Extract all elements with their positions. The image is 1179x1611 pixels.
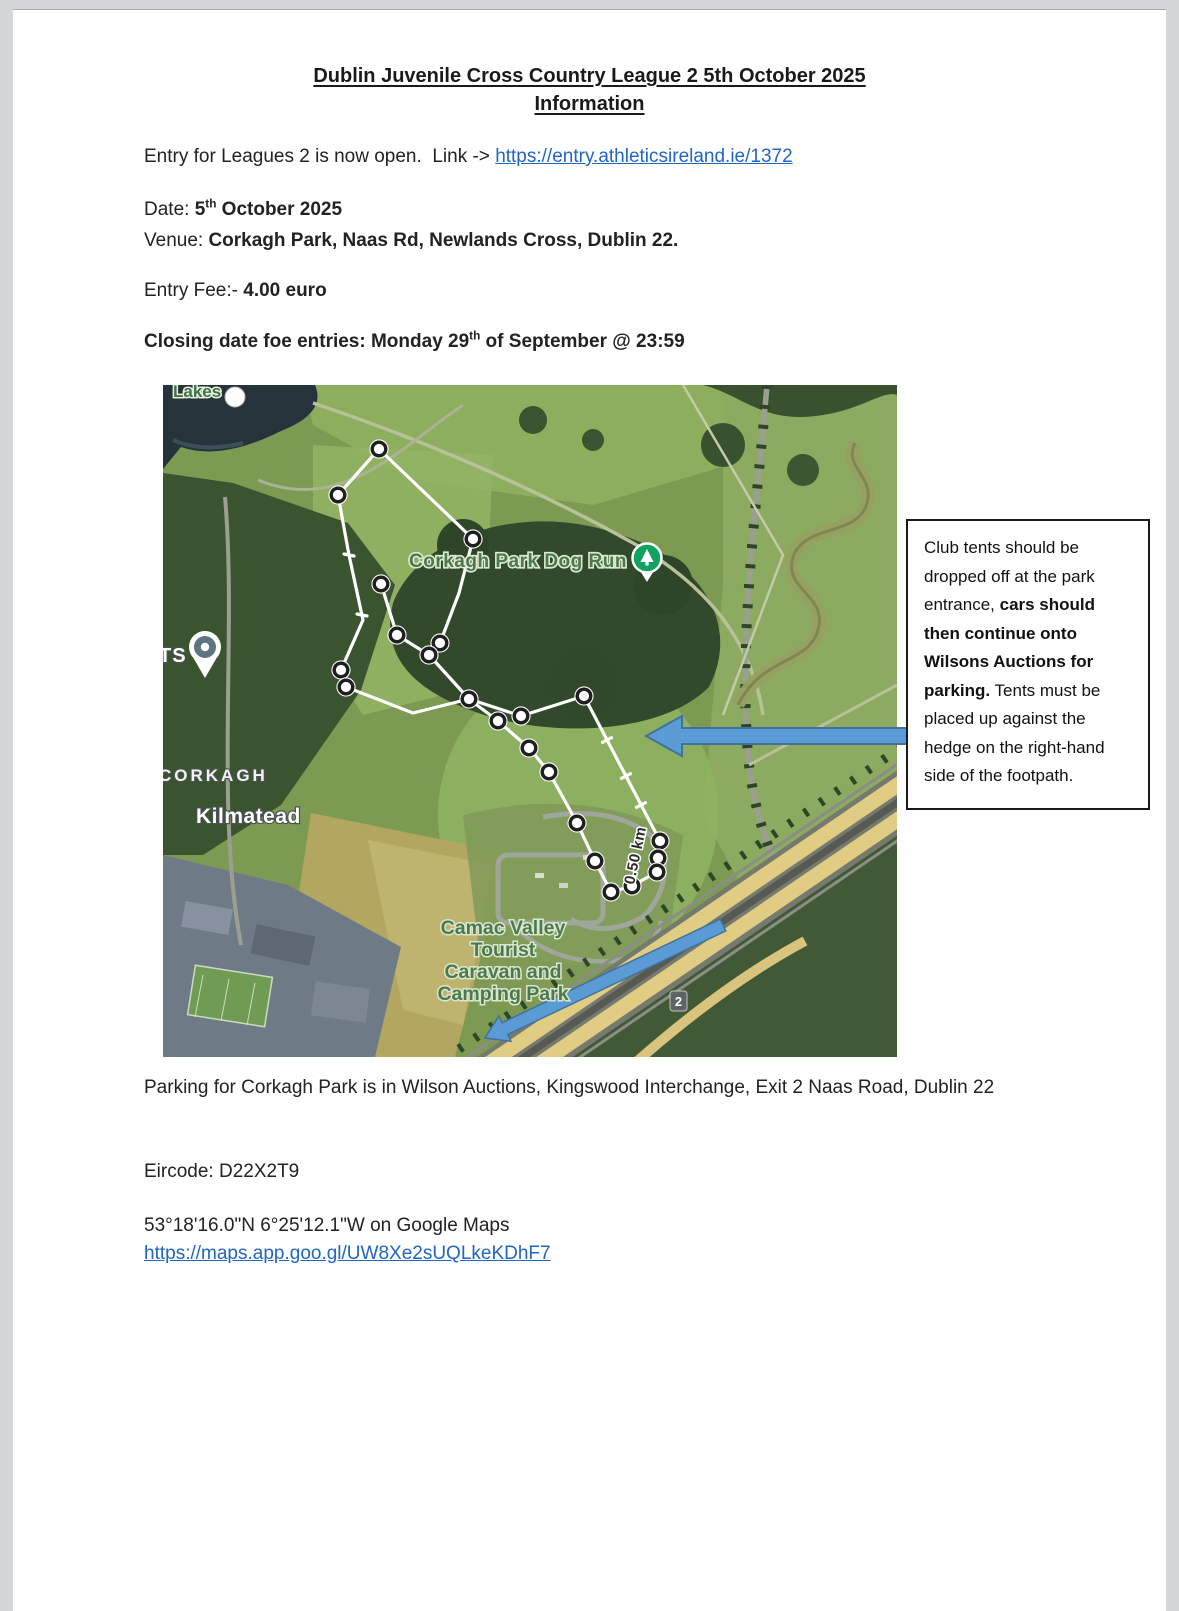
closing-suffix: of September @ 23:59 bbox=[480, 331, 684, 352]
parking-direction-arrow bbox=[642, 710, 914, 762]
club-tents-note-box: Club tents should be dropped off at the … bbox=[906, 519, 1150, 810]
svg-text:Camping Park: Camping Park bbox=[437, 983, 568, 1005]
fee-value: 4.00 euro bbox=[243, 280, 326, 301]
google-maps-link[interactable]: https://maps.app.goo.gl/UW8Xe2sUQLkeKDhF… bbox=[144, 1243, 551, 1264]
parking-info: Parking for Corkagh Park is in Wilson Au… bbox=[144, 1074, 1049, 1102]
map-label-dog-run: Corkagh Park Dog Run bbox=[409, 551, 627, 572]
closing-text: Closing date foe entries: Monday 29 bbox=[144, 331, 469, 352]
title-line1: Dublin Juvenile Cross Country League 2 5… bbox=[313, 65, 865, 87]
fee-line: Entry Fee:- 4.00 euro bbox=[144, 280, 327, 302]
map-label-ts: TS bbox=[163, 645, 187, 667]
map-junction-badge: 2 bbox=[670, 991, 687, 1011]
venue-label: Venue: bbox=[144, 230, 208, 251]
map-label-camac-valley: Camac Valley Tourist Caravan and Camping… bbox=[437, 917, 568, 1005]
svg-text:Caravan and: Caravan and bbox=[444, 961, 561, 983]
map-label-corkagh: CORKAGH bbox=[163, 766, 268, 785]
closing-ordinal: th bbox=[469, 330, 480, 343]
date-ordinal: th bbox=[205, 198, 216, 211]
fee-label: Entry Fee:- bbox=[144, 280, 243, 301]
cutoff-map-marker bbox=[225, 387, 245, 407]
page-title: Dublin Juvenile Cross Country League 2 5… bbox=[13, 65, 1166, 88]
entry-link[interactable]: https://entry.athleticsireland.ie/1372 bbox=[495, 146, 793, 167]
venue-value: Corkagh Park, Naas Rd, Newlands Cross, D… bbox=[208, 230, 678, 251]
entry-line: Entry for Leagues 2 is now open. Link ->… bbox=[144, 146, 793, 168]
eircode-line: Eircode: D22X2T9 bbox=[144, 1158, 299, 1186]
page-subtitle: Information bbox=[13, 93, 1166, 116]
map-label-partial-top: Lakes bbox=[173, 385, 221, 401]
svg-text:Camac Valley: Camac Valley bbox=[441, 917, 566, 939]
venue-line: Venue: Corkagh Park, Naas Rd, Newlands C… bbox=[144, 230, 678, 252]
page-gutter-right bbox=[1166, 0, 1179, 1611]
maps-link-line: https://maps.app.goo.gl/UW8Xe2sUQLkeKDhF… bbox=[144, 1240, 551, 1268]
document-viewport: Dublin Juvenile Cross Country League 2 5… bbox=[0, 0, 1179, 1611]
closing-line: Closing date foe entries: Monday 29th of… bbox=[144, 331, 685, 353]
date-rest: October 2025 bbox=[216, 199, 342, 220]
title-line2: Information bbox=[535, 93, 645, 115]
map-label-kilmatead: Kilmatead bbox=[196, 805, 301, 828]
entry-text: Entry for Leagues 2 is now open. Link -> bbox=[144, 146, 495, 167]
svg-text:Tourist: Tourist bbox=[471, 939, 536, 961]
date-label: Date: bbox=[144, 199, 195, 220]
date-line: Date: 5th October 2025 bbox=[144, 199, 342, 221]
coordinates-line: 53°18'16.0"N 6°25'12.1"W on Google Maps bbox=[144, 1212, 510, 1240]
date-day: 5 bbox=[195, 199, 206, 220]
svg-text:2: 2 bbox=[675, 994, 682, 1009]
